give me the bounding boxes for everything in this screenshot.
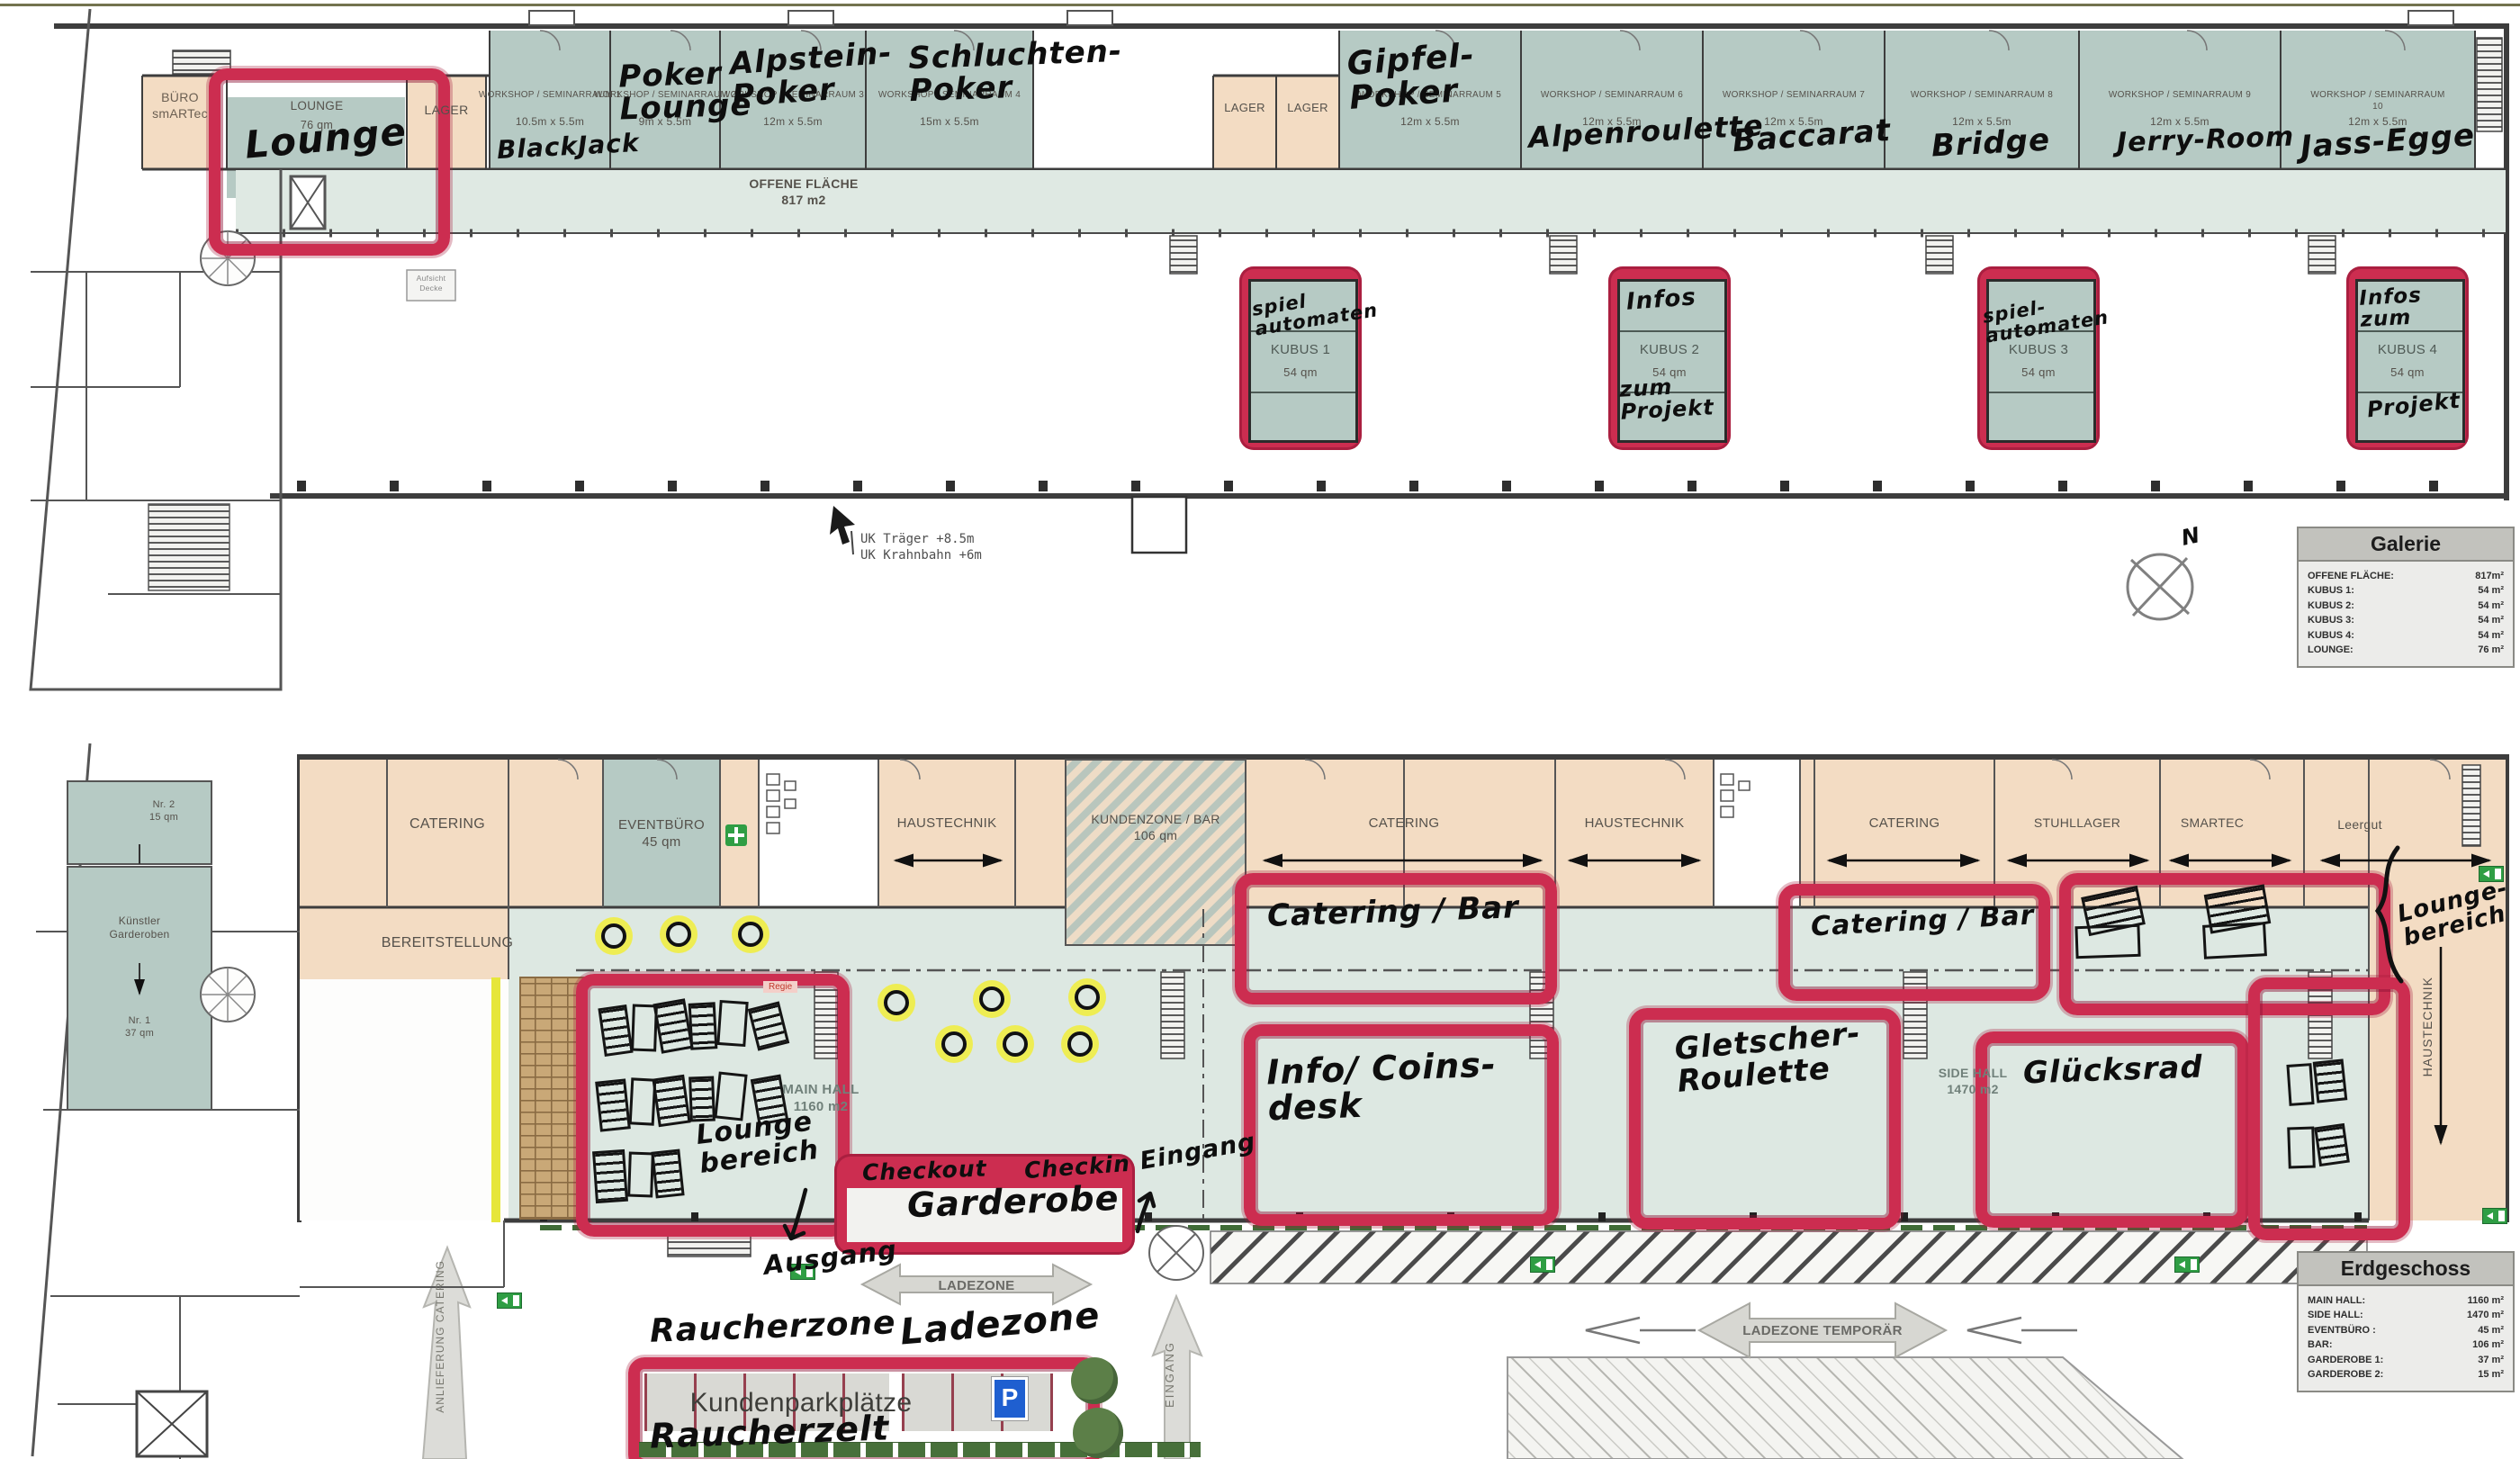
room-label-catering-2: CATERING bbox=[1369, 815, 1440, 833]
kubus-2-name: KUBUS 2 bbox=[1640, 342, 1699, 359]
room-label-lager: LAGER bbox=[1224, 101, 1265, 115]
legend-row: SIDE HALL:1470 m² bbox=[2299, 1308, 2513, 1322]
room-label-bereitstellung: BEREITSTELLUNG bbox=[382, 934, 513, 952]
hand-checkout: Checkout bbox=[862, 1157, 987, 1185]
legend-galerie-title: Galerie bbox=[2299, 528, 2513, 562]
legend-value: 54 m² bbox=[2478, 599, 2504, 613]
first-aid-icon bbox=[725, 824, 747, 846]
hand-bridge: Bridge bbox=[1930, 125, 2051, 164]
chair-sketch bbox=[2286, 1063, 2314, 1106]
room-label-kuenstler: Künstler Garderoben bbox=[109, 914, 169, 941]
ladezone-temporaer-label: LADEZONE TEMPORÄR bbox=[1742, 1323, 1903, 1340]
legend-label: MAIN HALL: bbox=[2308, 1293, 2365, 1308]
legend-value: 54 m² bbox=[2478, 583, 2504, 598]
spot-marker bbox=[979, 986, 1004, 1012]
room-label-haustechnik-2: HAUSTECHNIK bbox=[1585, 815, 1685, 833]
legend-label: LOUNGE: bbox=[2308, 643, 2353, 657]
legend-value: 54 m² bbox=[2478, 613, 2504, 627]
workshop-3-size: 12m x 5.5m bbox=[763, 115, 823, 129]
legend-row: OFFENE FLÄCHE:817m² bbox=[2299, 569, 2513, 583]
hand-jerry-room: Jerry-Room bbox=[2117, 123, 2295, 158]
chair-sketch bbox=[2314, 1123, 2350, 1166]
legend-label: EVENTBÜRO : bbox=[2308, 1323, 2376, 1337]
legend-row: KUBUS 2:54 m² bbox=[2299, 599, 2513, 613]
sofa-sketch bbox=[2074, 924, 2140, 959]
eingang-arrow-label: EINGANG bbox=[1163, 1341, 1178, 1408]
furniture-sketch bbox=[688, 1076, 715, 1122]
room-label-leergut: Leergut bbox=[2337, 817, 2382, 833]
legend-galerie: Galerie OFFENE FLÄCHE:817m² KUBUS 1:54 m… bbox=[2297, 527, 2515, 668]
workshop-8-name: WORKSHOP / SEMINARRAUM 8 bbox=[1911, 90, 2053, 102]
hand-gipfel-poker: Gipfel- Poker bbox=[1346, 39, 1479, 115]
uk-note: UK Träger +8.5m UK Krahnbahn +6m bbox=[860, 531, 982, 563]
hand-kubus-2-bottom: zum Projekt bbox=[1619, 374, 1715, 424]
kubus-1-size: 54 qm bbox=[1283, 365, 1318, 380]
legend-row: KUBUS 4:54 m² bbox=[2299, 628, 2513, 643]
workshop-6-name: WORKSHOP / SEMINARRAUM 6 bbox=[1541, 90, 1683, 102]
room-label-kundenzone-bar: KUNDENZONE / BAR 106 qm bbox=[1091, 812, 1219, 843]
tree-icon bbox=[1073, 1408, 1123, 1458]
parking-sign: P bbox=[992, 1377, 1028, 1420]
legend-label: KUBUS 3: bbox=[2308, 613, 2354, 627]
furniture-sketch bbox=[595, 1078, 631, 1131]
exit-sign-icon bbox=[1530, 1256, 1555, 1273]
room-label-lounge: LOUNGE bbox=[291, 99, 344, 114]
legend-label: SIDE HALL: bbox=[2308, 1308, 2363, 1322]
room-label-haustechnik-1: HAUSTECHNIK bbox=[897, 815, 997, 833]
room-label-stuhllager: STUHLLAGER bbox=[2034, 815, 2120, 832]
legend-row: KUBUS 3:54 m² bbox=[2299, 613, 2513, 627]
legend-row: MAIN HALL:1160 m² bbox=[2299, 1293, 2513, 1308]
kubus-1-name: KUBUS 1 bbox=[1271, 342, 1330, 359]
furniture-sketch bbox=[716, 1000, 748, 1047]
hand-alpstein-poker: Alpstein- Poker bbox=[729, 38, 895, 113]
legend-label: BAR: bbox=[2308, 1337, 2333, 1352]
exit-sign-icon bbox=[2174, 1256, 2200, 1273]
hand-raucherzelt: Raucherzelt bbox=[649, 1410, 889, 1454]
room-label-nr1: Nr. 1 37 qm bbox=[125, 1015, 154, 1040]
furniture-sketch bbox=[592, 1149, 628, 1203]
legend-erdgeschoss-title: Erdgeschoss bbox=[2299, 1253, 2513, 1286]
legend-value: 76 m² bbox=[2478, 643, 2504, 657]
highlight-chairs-zone bbox=[2248, 977, 2410, 1240]
room-label-catering-3: CATERING bbox=[1869, 815, 1940, 833]
sofa-sketch bbox=[2202, 922, 2267, 959]
kubus-3-size: 54 qm bbox=[2021, 365, 2056, 380]
offene-flaeche-label: OFFENE FLÄCHE 817 m2 bbox=[749, 176, 858, 208]
legend-value: 37 m² bbox=[2478, 1353, 2504, 1367]
legend-value: 1470 m² bbox=[2467, 1308, 2504, 1322]
ladezone-arrow-label: LADEZONE bbox=[939, 1278, 1015, 1295]
furniture-sketch bbox=[688, 1002, 718, 1049]
legend-label: GARDEROBE 1: bbox=[2308, 1353, 2383, 1367]
workshop-1-size: 10.5m x 5.5m bbox=[516, 115, 584, 129]
parking-stalls-right bbox=[902, 1373, 1053, 1431]
kubus-3-name: KUBUS 3 bbox=[2009, 342, 2068, 359]
legend-value: 1160 m² bbox=[2468, 1293, 2504, 1308]
legend-row: GARDEROBE 2:15 m² bbox=[2299, 1367, 2513, 1382]
hand-schluchten-poker: Schluchten- Poker bbox=[908, 36, 1124, 108]
spot-marker bbox=[738, 922, 763, 947]
hand-kubus-2-top: Infos bbox=[1625, 285, 1697, 315]
furniture-sketch bbox=[651, 1148, 684, 1198]
legend-value: 106 m² bbox=[2472, 1337, 2504, 1352]
room-label-eventbuero: EVENTBÜRO 45 qm bbox=[618, 817, 705, 851]
room-label-buero: BÜRO smARTec bbox=[152, 90, 208, 122]
legend-value: 15 m² bbox=[2478, 1367, 2504, 1382]
tree-icon bbox=[1071, 1357, 1118, 1404]
spot-marker bbox=[666, 922, 691, 947]
legend-value: 45 m² bbox=[2478, 1323, 2504, 1337]
exit-sign-icon bbox=[2482, 1208, 2507, 1224]
spot-marker bbox=[1003, 1031, 1028, 1057]
spot-marker bbox=[884, 990, 909, 1015]
regie-label: Regie bbox=[763, 981, 797, 993]
room-label-smartec: SMARTEC bbox=[2181, 815, 2244, 832]
legend-row: EVENTBÜRO :45 m² bbox=[2299, 1323, 2513, 1337]
spot-marker bbox=[601, 923, 626, 949]
legend-row: LOUNGE:76 m² bbox=[2299, 643, 2513, 657]
workshop-9-name: WORKSHOP / SEMINARRAUM 9 bbox=[2109, 90, 2251, 102]
legend-value: 54 m² bbox=[2478, 628, 2504, 643]
legend-label: GARDEROBE 2: bbox=[2308, 1367, 2383, 1382]
highlight-lounge-galerie bbox=[209, 68, 450, 256]
legend-label: KUBUS 4: bbox=[2308, 628, 2354, 643]
room-label-nr2: Nr. 2 15 qm bbox=[149, 799, 178, 824]
legend-label: KUBUS 1: bbox=[2308, 583, 2354, 598]
hand-garderobe: Garderobe bbox=[906, 1181, 1120, 1224]
legend-row: KUBUS 1:54 m² bbox=[2299, 583, 2513, 598]
legend-label: KUBUS 2: bbox=[2308, 599, 2354, 613]
anlieferung-catering-label: ANLIEFERUNG CATERING bbox=[434, 1260, 448, 1413]
legend-row: GARDEROBE 1:37 m² bbox=[2299, 1353, 2513, 1367]
room-label-haustechnik-vert: HAUSTECHNIK bbox=[2419, 977, 2435, 1076]
furniture-sketch bbox=[652, 1075, 690, 1127]
spot-marker bbox=[941, 1031, 967, 1057]
room-label-lager: LAGER bbox=[1287, 101, 1328, 115]
kubus-4-size: 54 qm bbox=[2390, 365, 2425, 380]
chair-sketch bbox=[2313, 1058, 2348, 1103]
workshop-4-size: 15m x 5.5m bbox=[920, 115, 979, 129]
workshop-10-name: WORKSHOP / SEMINARRAUM 10 bbox=[2307, 90, 2449, 113]
legend-row: BAR:106 m² bbox=[2299, 1337, 2513, 1352]
hand-info-coins-desk: Info/ Coins- desk bbox=[1266, 1048, 1498, 1128]
room-label-lager: LAGER bbox=[425, 103, 469, 119]
spot-marker bbox=[1075, 985, 1100, 1010]
kubus-4-name: KUBUS 4 bbox=[2378, 342, 2437, 359]
legend-label: OFFENE FLÄCHE: bbox=[2308, 569, 2394, 583]
workshop-7-name: WORKSHOP / SEMINARRAUM 7 bbox=[1723, 90, 1865, 102]
hand-gluecksrad: Glücksrad bbox=[2022, 1052, 2203, 1091]
hand-kubus-4-top: Infos zum bbox=[2359, 284, 2424, 331]
hand-blackjack: BlackJack bbox=[496, 130, 640, 164]
spot-marker bbox=[1067, 1031, 1093, 1057]
legend-value: 817m² bbox=[2475, 569, 2504, 583]
chair-sketch bbox=[2287, 1126, 2316, 1168]
exit-sign-icon bbox=[497, 1292, 522, 1309]
room-label-catering-1: CATERING bbox=[409, 815, 485, 833]
parking-sign-letter: P bbox=[1002, 1383, 1019, 1411]
workshop-5-size: 12m x 5.5m bbox=[1400, 115, 1460, 129]
aufsicht-label: Aufsicht Decke bbox=[417, 274, 446, 293]
hand-raucherzone: Raucherzone bbox=[649, 1306, 896, 1348]
floor-plan-canvas: P BÜRO smARTec LOUNGE 76 qm LAGER LAGER … bbox=[0, 0, 2520, 1459]
furniture-sketch bbox=[627, 1152, 654, 1198]
side-hall-label: SIDE HALL 1470 m2 bbox=[1939, 1066, 2008, 1097]
legend-erdgeschoss: Erdgeschoss MAIN HALL:1160 m² SIDE HALL:… bbox=[2297, 1251, 2515, 1392]
